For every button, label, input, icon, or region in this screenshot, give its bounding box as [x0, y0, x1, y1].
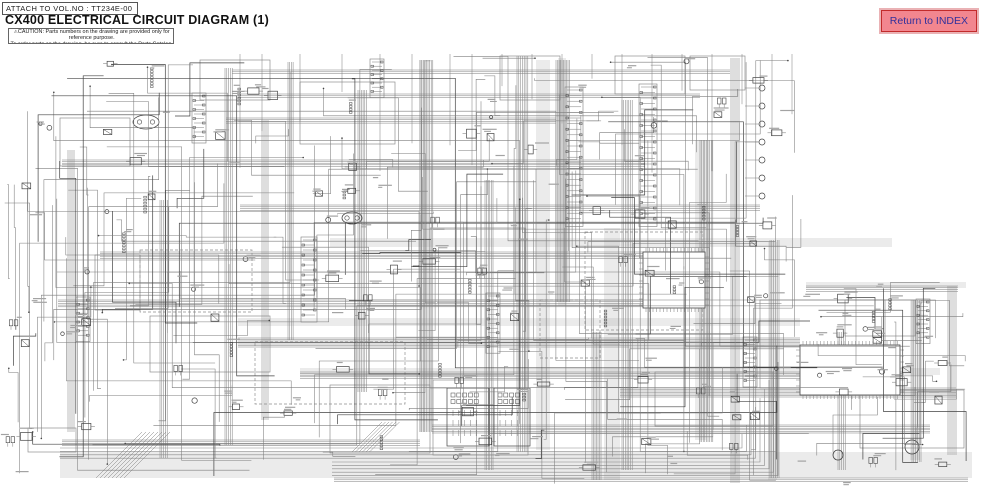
return-to-index-button[interactable]: Return to INDEX	[881, 10, 977, 32]
circuit-diagram	[0, 0, 983, 490]
service-manual-page: ATTACH TO VOL.NO : TT234E-00 CX400 ELECT…	[0, 0, 983, 490]
